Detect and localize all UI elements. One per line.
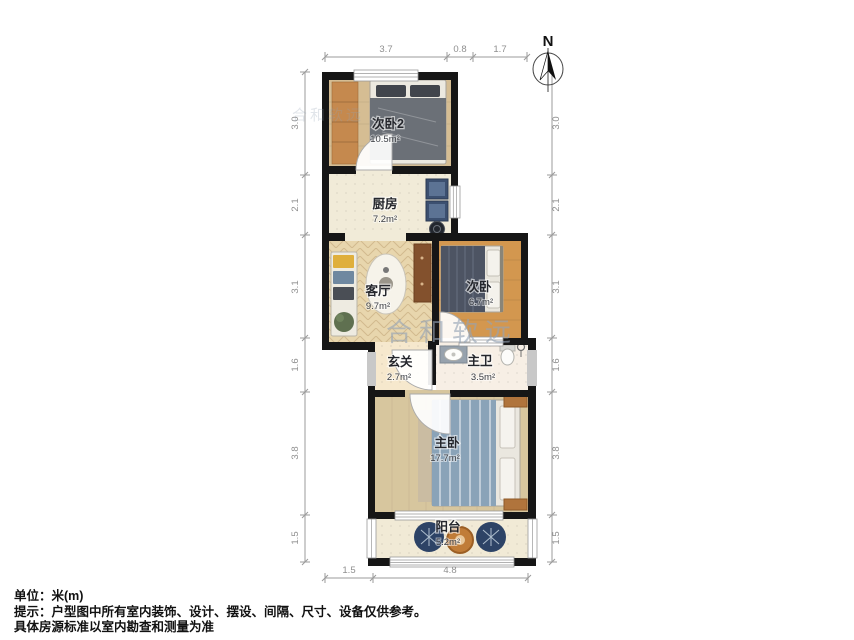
- footer-standard-line: 具体房源标准以室内勘查和测量为准: [14, 620, 427, 636]
- dim-top-3: 1.7: [493, 44, 506, 55]
- entry-area: 2.7m²: [387, 372, 411, 383]
- bath-area: 3.5m²: [471, 372, 495, 383]
- dim-right-4: 1.6: [551, 358, 562, 371]
- living-tv-cabinet: [414, 244, 431, 302]
- bedroom-label: 次卧: [466, 279, 492, 294]
- bedroom2-label: 次卧2: [372, 116, 404, 131]
- dim-right-5: 3.8: [551, 446, 562, 459]
- footer-unit-line: 单位：米(m): [14, 589, 427, 605]
- master-area: 17.7m²: [430, 453, 460, 464]
- dim-right-2: 2.1: [551, 198, 562, 211]
- kitchen-living-threshold: [345, 233, 406, 241]
- living-sofa: [331, 252, 357, 336]
- balcony-label: 阳台: [435, 519, 460, 534]
- balcony-slider-door: [395, 511, 503, 520]
- bedroom2-area: 10.5m²: [370, 134, 400, 145]
- master-nightstand-bottom: [504, 499, 527, 510]
- balcony-area: 5.2m²: [436, 537, 460, 548]
- dim-bottom-2: 4.8: [443, 565, 456, 576]
- dim-right-3: 3.1: [551, 280, 562, 293]
- dim-top-2: 0.8: [453, 44, 466, 55]
- master-nightstand-top: [504, 396, 527, 407]
- footer-notes: 单位：米(m) 提示：户型图中所有室内装饰、设计、摆设、间隔、尺寸、设备仅供参考…: [14, 589, 427, 636]
- floorplan-page: 次卧2 10.5m² 厨房 7.2m² 客厅 9.7m² 次卧 6.7m² 玄关…: [0, 0, 854, 640]
- watermark-faint: 合和软远: [292, 104, 364, 125]
- dim-left-4: 1.6: [290, 358, 301, 371]
- bath-vent-window: [527, 350, 537, 386]
- dim-left-5: 3.8: [290, 446, 301, 459]
- north-label: N: [543, 33, 554, 50]
- balcony-window-right: [528, 519, 537, 558]
- bedroom2-window: [354, 70, 418, 81]
- entry-vent-window: [367, 352, 376, 386]
- footer-disclaimer-line: 提示：户型图中所有室内装饰、设计、摆设、间隔、尺寸、设备仅供参考。: [14, 605, 427, 621]
- dim-right-1: 3.0: [551, 116, 562, 129]
- dim-left-6: 1.5: [290, 531, 301, 544]
- dim-left-3: 3.1: [290, 280, 301, 293]
- kitchen-window: [450, 186, 460, 218]
- dim-right-6: 1.5: [551, 531, 562, 544]
- kitchen-label: 厨房: [372, 196, 397, 211]
- bath-label: 主卫: [467, 353, 493, 368]
- living-label: 客厅: [364, 283, 391, 298]
- watermark: 合和软远: [386, 312, 556, 349]
- entry-label: 玄关: [387, 354, 413, 369]
- kitchen-area: 7.2m²: [373, 214, 397, 225]
- master-label: 主卧: [434, 435, 460, 450]
- dim-top-1: 3.7: [379, 44, 392, 55]
- living-area: 9.7m²: [366, 301, 390, 312]
- bedroom-area: 6.7m²: [469, 297, 493, 308]
- dim-bottom-1: 1.5: [342, 565, 355, 576]
- balcony-window-left: [367, 519, 376, 558]
- dim-left-2: 2.1: [290, 198, 301, 211]
- balcony-plant-right: [476, 522, 506, 552]
